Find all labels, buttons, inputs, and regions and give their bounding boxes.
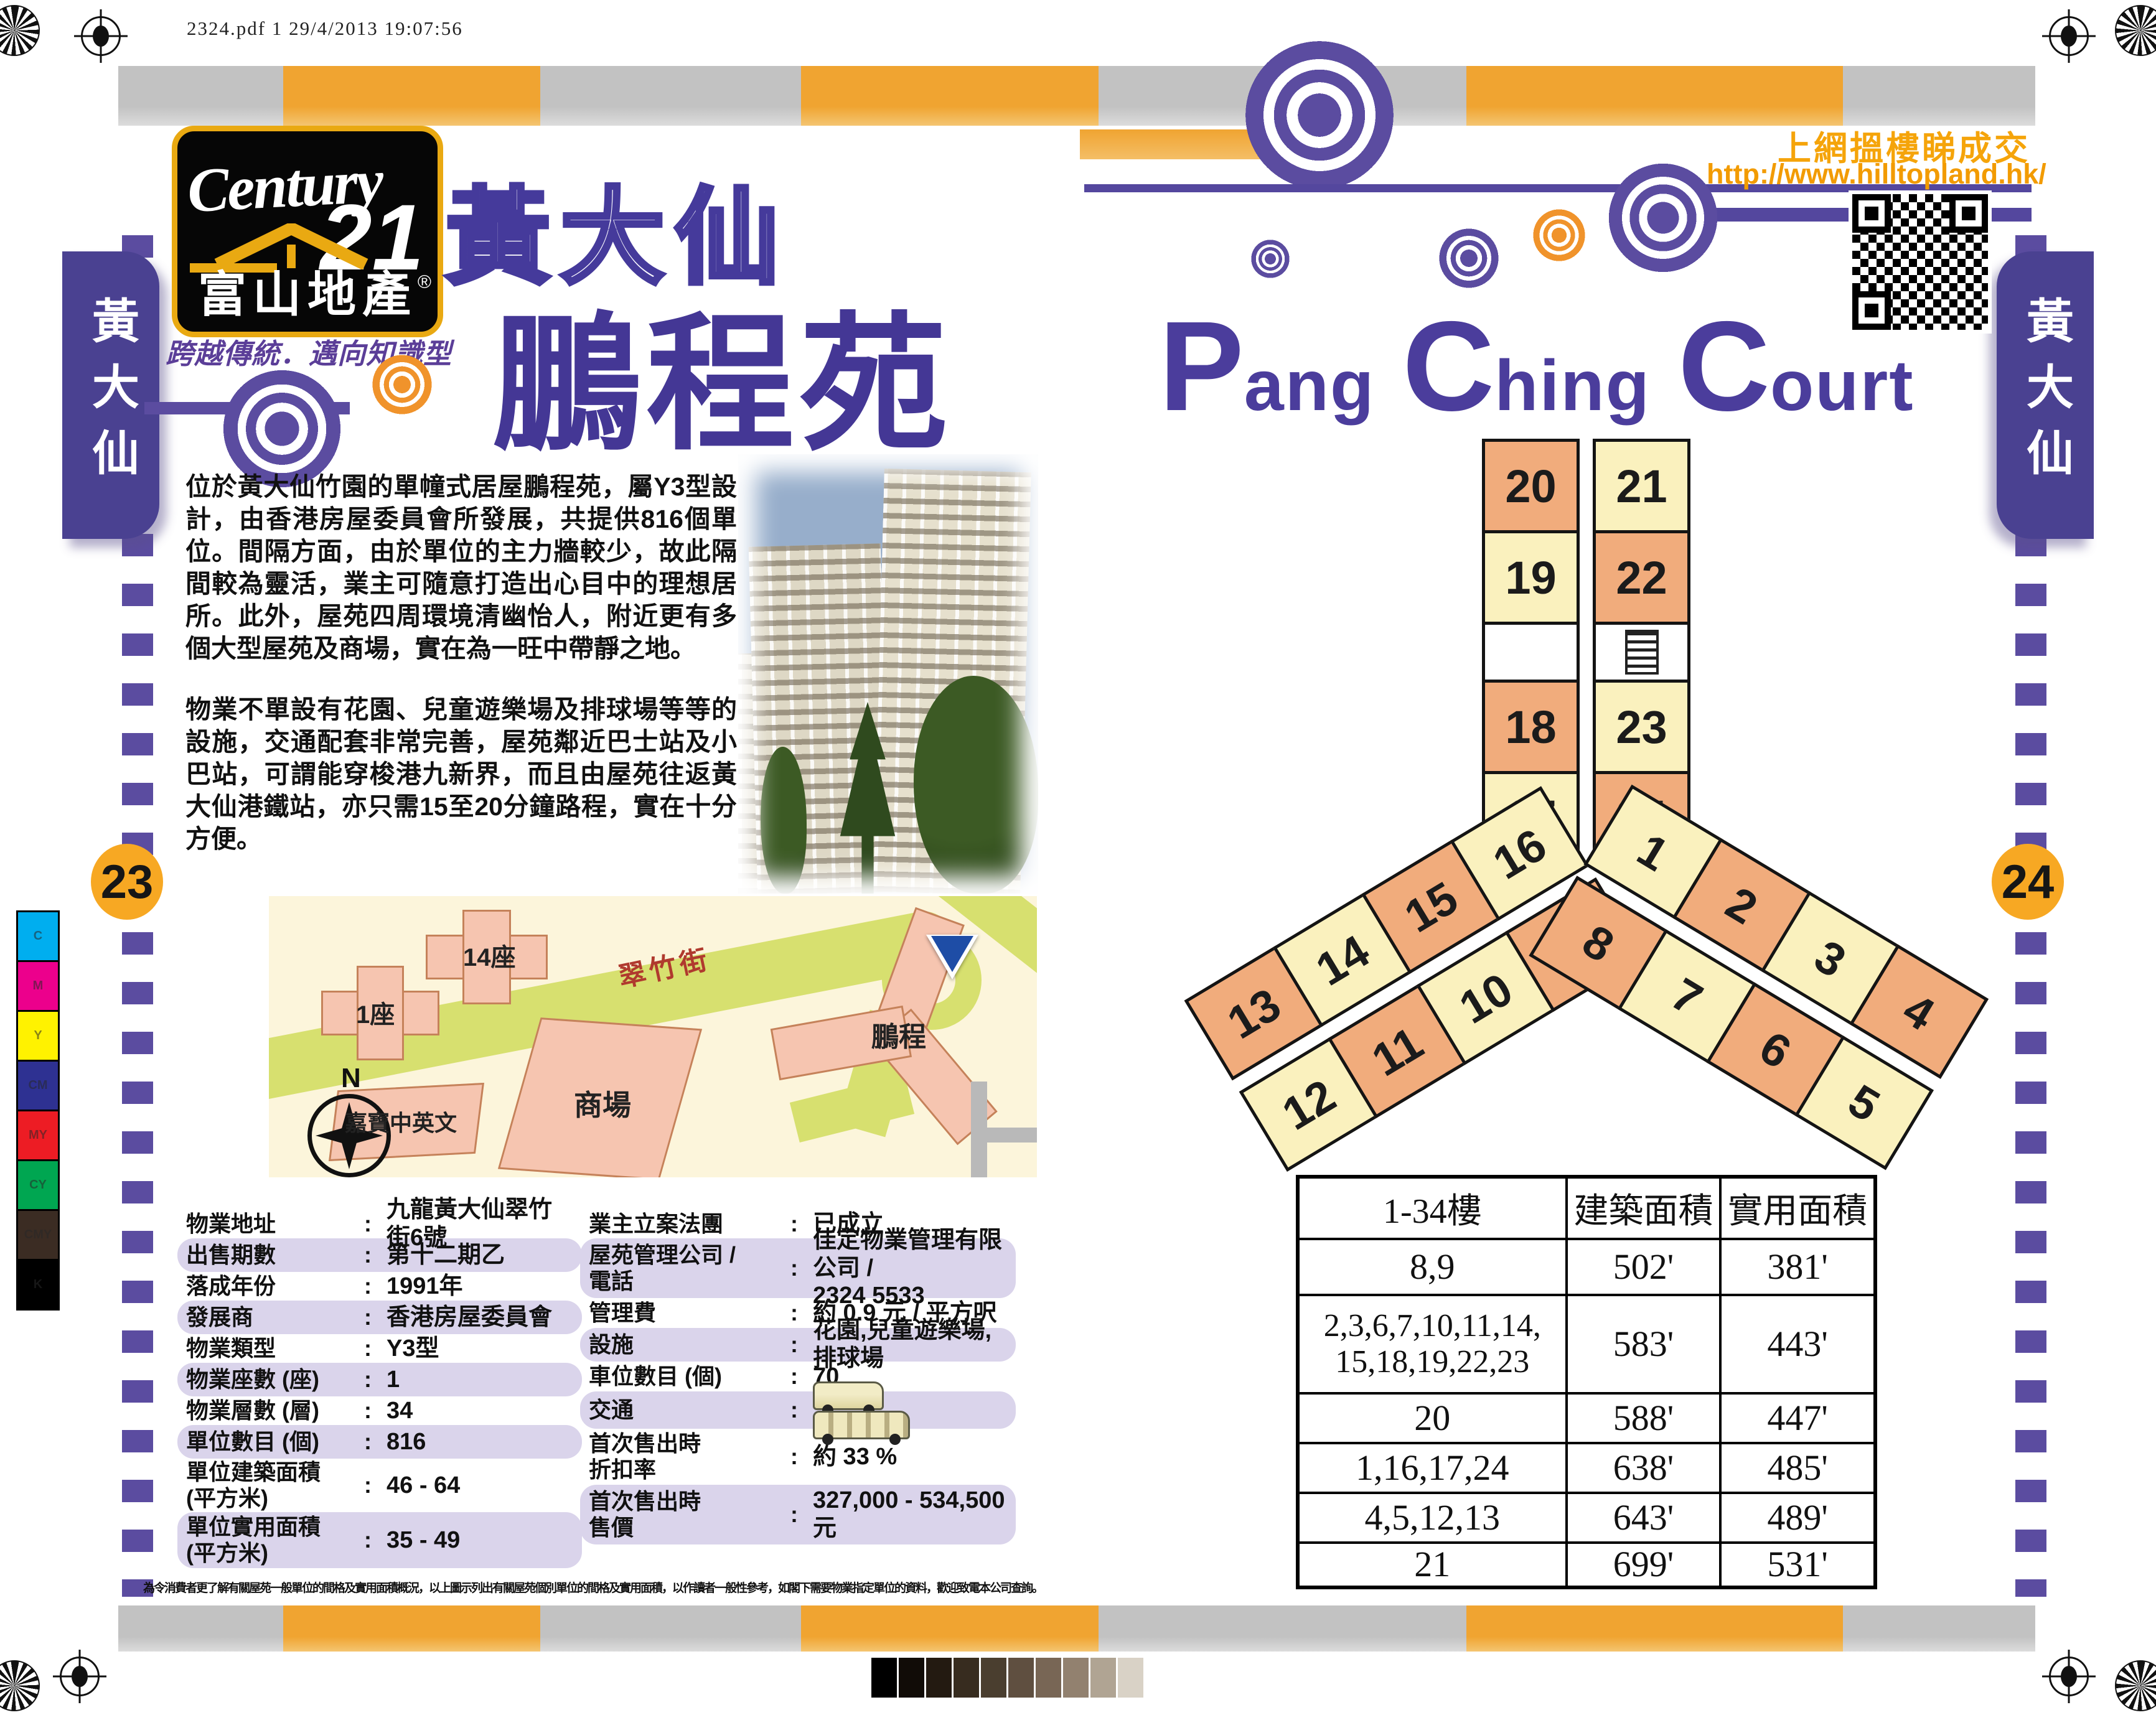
detail-value (813, 1381, 1007, 1439)
detail-label: 單位建築面積 (平方米) (186, 1459, 349, 1512)
area-table-row: 8,9502'381' (1298, 1239, 1875, 1295)
detail-label: 業主立案法團 (589, 1211, 776, 1237)
detail-row: 物業地址:九龍黃大仙翠竹街6號 (177, 1210, 582, 1238)
map-building-label: 嘉寶中英文 (345, 1105, 457, 1138)
detail-label: 單位數目 (個) (186, 1429, 349, 1455)
area-table-cell: 638' (1567, 1443, 1721, 1493)
detail-value: 34 (387, 1397, 573, 1425)
header-band-segment (283, 66, 540, 126)
detail-value: 第十二期乙 (387, 1241, 573, 1269)
detail-label: 首次售出時 售價 (589, 1488, 776, 1541)
district-tab-left: 黃大仙 (62, 251, 159, 539)
map-road-gray (971, 1128, 1037, 1143)
area-table-cell: 4,5,12,13 (1298, 1493, 1567, 1543)
color-swatch: CMY (16, 1209, 60, 1261)
page-number-badge: 23 (91, 844, 163, 920)
header-band-segment (1843, 66, 2035, 126)
detail-label: 設施 (589, 1332, 776, 1358)
floorplan-unit-21: 21 (1593, 439, 1690, 533)
detail-row: 屋苑管理公司 / 電話:佳定物業管理有限公司 / 2324 5533 (580, 1238, 1016, 1298)
deco-circle (372, 355, 432, 414)
area-table-cell: 643' (1567, 1493, 1721, 1543)
header-band-segment (1466, 66, 1843, 126)
floorplan-unit-18: 18 (1482, 680, 1580, 774)
detail-value: 約 33 % (813, 1443, 1007, 1471)
deco-circle (1245, 40, 1394, 190)
detail-value: 35 - 49 (387, 1526, 573, 1554)
detail-label: 首次售出時 折扣率 (589, 1431, 776, 1484)
floorplan-arm-top: 2021192218231724 (1485, 442, 1690, 862)
registration-mark (60, 1657, 100, 1696)
logo-chinese-name: 富山地產 (177, 256, 438, 325)
detail-row: 交通: (580, 1391, 1016, 1429)
area-table-cell: 21 (1298, 1543, 1567, 1587)
area-table-cell: 588' (1567, 1393, 1721, 1443)
color-swatch: M (16, 960, 60, 1012)
area-table-row: 21699'531' (1298, 1543, 1875, 1587)
grayscale-swatch (1036, 1658, 1061, 1698)
page-number-badge: 24 (1992, 844, 2064, 920)
detail-label: 交通 (589, 1397, 776, 1423)
map-building-label: 商場 (574, 1083, 631, 1124)
pinwheel-mark-bottom-right (2115, 1660, 2156, 1711)
footer-band-segment (801, 1605, 1099, 1652)
detail-label: 發展商 (186, 1304, 349, 1330)
color-swatch: K (16, 1259, 60, 1311)
stairs-icon (1625, 630, 1659, 675)
area-table-row: 1,16,17,24638'485' (1298, 1443, 1875, 1493)
detail-label: 管理費 (589, 1300, 776, 1326)
area-table-cell: 1,16,17,24 (1298, 1443, 1567, 1493)
detail-label: 車位數目 (個) (589, 1363, 776, 1390)
detail-value: 46 - 64 (387, 1472, 573, 1500)
location-map: 翠竹街 14座 1座 商場 嘉寶中英文 鵬程 N (269, 896, 1037, 1177)
district-tab-right: 黃大仙 (1997, 251, 2094, 539)
floorplan-unit-23: 23 (1593, 680, 1690, 774)
detail-label: 物業層數 (層) (186, 1398, 349, 1424)
color-swatch: MY (16, 1110, 60, 1161)
detail-row: 物業座數 (座):1 (177, 1363, 582, 1396)
deco-circle (1439, 228, 1499, 288)
header-band-segment (801, 66, 1099, 126)
map-building-label: 14座 (463, 937, 516, 973)
pinwheel-mark-bottom-left (0, 1660, 40, 1711)
disclaimer-text: 為令消費者更了解有關屋苑一般單位的間格及實用面積概況，以上圖示列出有關屋苑個別單… (143, 1579, 1201, 1596)
area-table-row: 2,3,6,7,10,11,14, 15,18,19,22,23583'443' (1298, 1295, 1875, 1393)
footer-band-segment (283, 1605, 540, 1652)
area-table-cell: 583' (1567, 1295, 1721, 1393)
grayscale-swatch (1063, 1658, 1089, 1698)
description-paragraph: 物業不單設有花園、兒童遊樂場及排球場等等的設施，交通配套非常完善，屋苑鄰近巴士站… (185, 693, 737, 855)
estate-title-english: PangChingCourt (1159, 302, 1781, 430)
grayscale-swatch (871, 1658, 897, 1698)
footer-band-segment (540, 1605, 801, 1652)
brochure-spread: 2324.pdf 1 29/4/2013 19:07:56 黃大仙 黃大仙 23… (0, 0, 2156, 1715)
estate-title: 鵬程苑 (493, 264, 952, 479)
detail-row: 出售期數:第十二期乙 (177, 1238, 582, 1272)
estate-description: 位於黃大仙竹園的單幢式居屋鵬程苑，屬Y3型設計，由香港房屋委員會所發展，共提供8… (185, 470, 737, 884)
district-tab-label: 黃大仙 (2011, 296, 2079, 494)
detail-row: 單位建築面積 (平方米):46 - 64 (177, 1459, 582, 1512)
deco-circle (1608, 163, 1718, 273)
floorplan-unit-19: 19 (1482, 530, 1580, 625)
color-swatch: CM (16, 1060, 60, 1111)
area-table-header: 實用面積 (1720, 1177, 1875, 1239)
century21-logo: Century 21 ® 富山地產 (172, 126, 443, 337)
area-table-cell: 443' (1720, 1295, 1875, 1393)
area-table-row: 20588'447' (1298, 1393, 1875, 1443)
title-word: Ching (1402, 302, 1651, 430)
floorplan-unit-22: 22 (1593, 530, 1690, 625)
area-table-cell: 381' (1720, 1239, 1875, 1295)
double-decker-bus-icon (813, 1411, 910, 1439)
property-details-column-right: 業主立案法團:已成立屋苑管理公司 / 電話:佳定物業管理有限公司 / 2324 … (580, 1210, 1016, 1544)
footer-band-segment (118, 1605, 283, 1652)
detail-row: 單位數目 (個):816 (177, 1425, 582, 1459)
estate-photo (738, 454, 1038, 894)
area-table-row: 4,5,12,13643'489' (1298, 1493, 1875, 1543)
grayscale-swatch (981, 1658, 1006, 1698)
area-table-cell: 531' (1720, 1543, 1875, 1587)
detail-value: Y3型 (387, 1335, 573, 1363)
title-word: Court (1678, 302, 1915, 430)
area-table-header: 1-34樓 (1298, 1177, 1567, 1239)
detail-label: 屋苑管理公司 / 電話 (589, 1242, 776, 1295)
detail-value: 香港房屋委員會 (387, 1304, 573, 1332)
color-calibration-bar: CMYCMMYCYCMYK (16, 912, 56, 1311)
detail-value: 327,000 - 534,500 元 (813, 1487, 1007, 1543)
map-sign-marker (926, 935, 978, 979)
grayscale-swatch (1008, 1658, 1034, 1698)
detail-label: 物業地址 (186, 1211, 349, 1237)
map-building-label: 1座 (356, 994, 395, 1030)
detail-label: 物業座數 (座) (186, 1367, 349, 1393)
detail-value: 1 (387, 1366, 573, 1394)
area-table-cell: 2,3,6,7,10,11,14, 15,18,19,22,23 (1298, 1295, 1567, 1393)
footer-band-segment (1843, 1605, 2035, 1652)
grayscale-swatch (1090, 1658, 1116, 1698)
grayscale-swatch (954, 1658, 979, 1698)
grayscale-swatch (926, 1658, 952, 1698)
footer-band-segment (1099, 1605, 1466, 1652)
detail-row: 首次售出時 售價:327,000 - 534,500 元 (580, 1485, 1016, 1544)
detail-value: 佳定物業管理有限公司 / 2324 5533 (813, 1227, 1007, 1310)
area-table-header: 建築面積 (1567, 1177, 1721, 1239)
area-table-cell: 20 (1298, 1393, 1567, 1443)
detail-row: 物業類型:Y3型 (177, 1334, 582, 1363)
detail-label: 落成年份 (186, 1273, 349, 1299)
print-file-info: 2324.pdf 1 29/4/2013 19:07:56 (187, 17, 463, 40)
detail-value: 1991年 (387, 1273, 573, 1301)
color-swatch: Y (16, 1010, 60, 1062)
color-swatch: CY (16, 1159, 60, 1211)
area-table-cell: 699' (1567, 1543, 1721, 1587)
area-table-cell: 489' (1720, 1493, 1875, 1543)
unit-area-table: 1-34樓建築面積實用面積8,9502'381'2,3,6,7,10,11,14… (1296, 1175, 1877, 1586)
detail-row: 發展商:香港房屋委員會 (177, 1301, 582, 1334)
registration-mark (2049, 16, 2089, 56)
floorplan-lobby (1482, 622, 1580, 683)
deco-circle (1533, 209, 1585, 261)
detail-label: 出售期數 (186, 1242, 349, 1268)
property-details-column-left: 物業地址:九龍黃大仙翠竹街6號出售期數:第十二期乙落成年份:1991年發展商:香… (177, 1210, 582, 1568)
area-table-cell: 502' (1567, 1239, 1721, 1295)
floorplan-arm-right: 12348765 (1532, 789, 1987, 1171)
grayscale-swatch (1118, 1658, 1143, 1698)
detail-row: 落成年份:1991年 (177, 1272, 582, 1301)
minibus-icon (813, 1381, 884, 1410)
area-table-cell: 447' (1720, 1393, 1875, 1443)
header-band-segment (118, 66, 283, 126)
map-building-label: 鵬程 (871, 1014, 926, 1054)
pinwheel-mark-top-right (2115, 5, 2156, 56)
detail-value: 816 (387, 1428, 573, 1456)
compass-north-label: N (341, 1063, 361, 1094)
detail-row: 設施:花園,兒童遊樂場,排球場 (580, 1328, 1016, 1362)
description-paragraph: 位於黃大仙竹園的單幢式居屋鵬程苑，屬Y3型設計，由香港房屋委員會所發展，共提供8… (185, 470, 737, 665)
website-link[interactable]: http://www.hilltopland.hk/ (1707, 158, 2046, 190)
floorplan-unit-20: 20 (1482, 439, 1580, 533)
detail-label: 單位實用面積 (平方米) (186, 1514, 349, 1567)
header-band-segment (540, 66, 801, 126)
detail-row: 物業層數 (層):34 (177, 1396, 582, 1425)
grayscale-calibration-bar (871, 1658, 1143, 1698)
deco-circle (1251, 240, 1290, 278)
registration-mark (2049, 1657, 2089, 1696)
area-table-cell: 485' (1720, 1443, 1875, 1493)
color-swatch: C (16, 910, 60, 962)
floorplan-stairwell (1593, 622, 1690, 683)
grayscale-swatch (899, 1658, 924, 1698)
registration-mark (81, 16, 121, 56)
detail-row: 單位實用面積 (平方米):35 - 49 (177, 1512, 582, 1568)
district-tab-label: 黃大仙 (77, 296, 145, 494)
area-table-cell: 8,9 (1298, 1239, 1567, 1295)
footer-band-segment (1466, 1605, 1843, 1652)
detail-label: 物業類型 (186, 1335, 349, 1362)
title-word: Pang (1159, 302, 1375, 430)
pinwheel-mark-top-left (0, 5, 40, 56)
